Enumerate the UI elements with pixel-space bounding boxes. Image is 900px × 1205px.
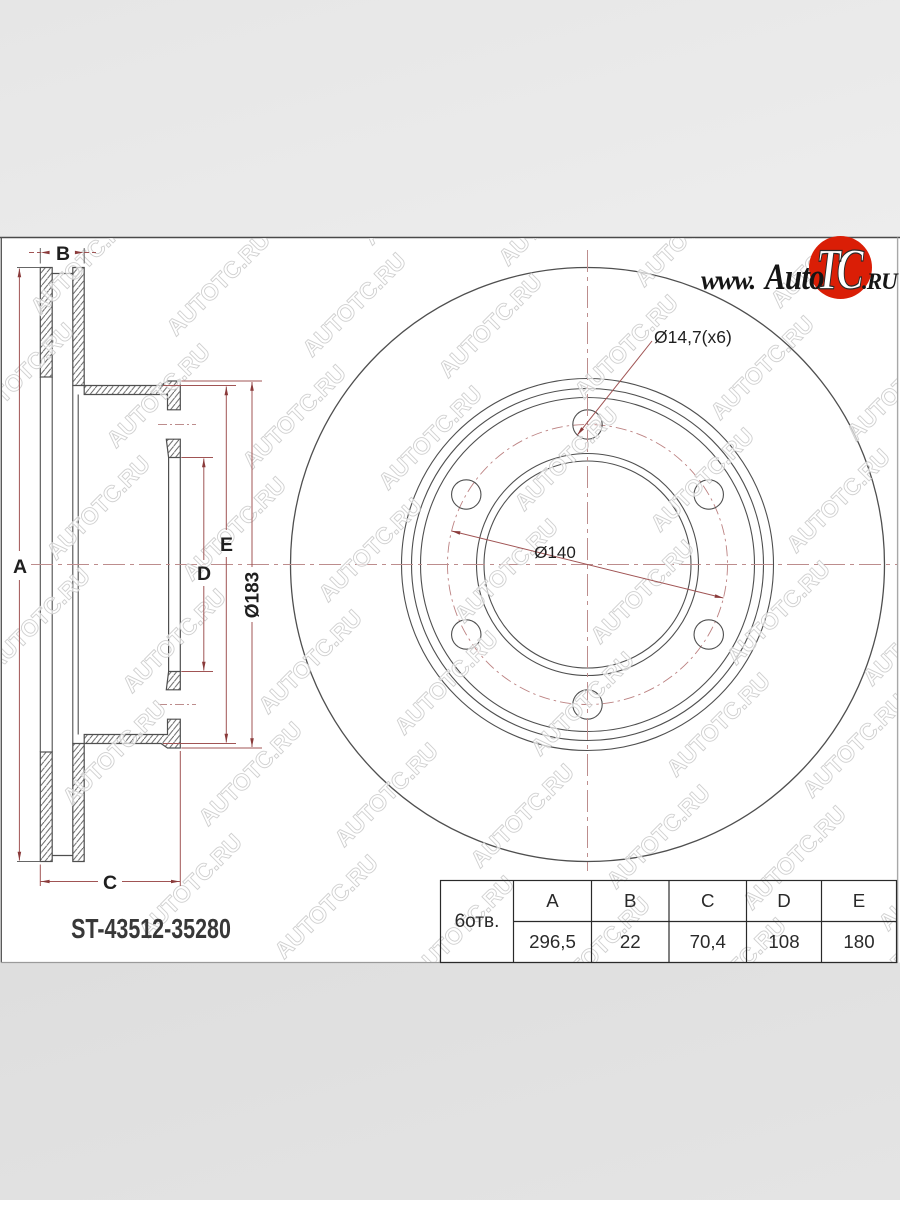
- svg-text:www.: www.: [701, 265, 755, 295]
- svg-text:A: A: [546, 890, 559, 911]
- svg-text:108: 108: [768, 931, 799, 952]
- svg-text:ST-43512-35280: ST-43512-35280: [71, 915, 231, 945]
- svg-text:E: E: [220, 534, 233, 556]
- svg-text:Ø14,7(x6): Ø14,7(x6): [654, 327, 732, 347]
- svg-text:22: 22: [620, 931, 641, 952]
- svg-text:D: D: [197, 563, 211, 585]
- svg-text:E: E: [853, 890, 865, 911]
- svg-text:C: C: [103, 872, 117, 894]
- svg-text:A: A: [13, 556, 27, 578]
- svg-text:70,4: 70,4: [690, 931, 726, 952]
- svg-text:D: D: [777, 890, 791, 911]
- svg-text:6отв.: 6отв.: [455, 911, 500, 932]
- svg-text:B: B: [624, 890, 636, 911]
- svg-text:B: B: [56, 243, 70, 265]
- svg-text:Ø140: Ø140: [534, 543, 576, 562]
- svg-text:180: 180: [843, 931, 874, 952]
- svg-text:.RU: .RU: [862, 269, 899, 294]
- svg-text:296,5: 296,5: [529, 931, 576, 952]
- svg-text:C: C: [701, 890, 715, 911]
- svg-text:Ø183: Ø183: [243, 572, 264, 618]
- svg-text:Auto: Auto: [763, 258, 824, 298]
- svg-text:TC: TC: [816, 236, 864, 301]
